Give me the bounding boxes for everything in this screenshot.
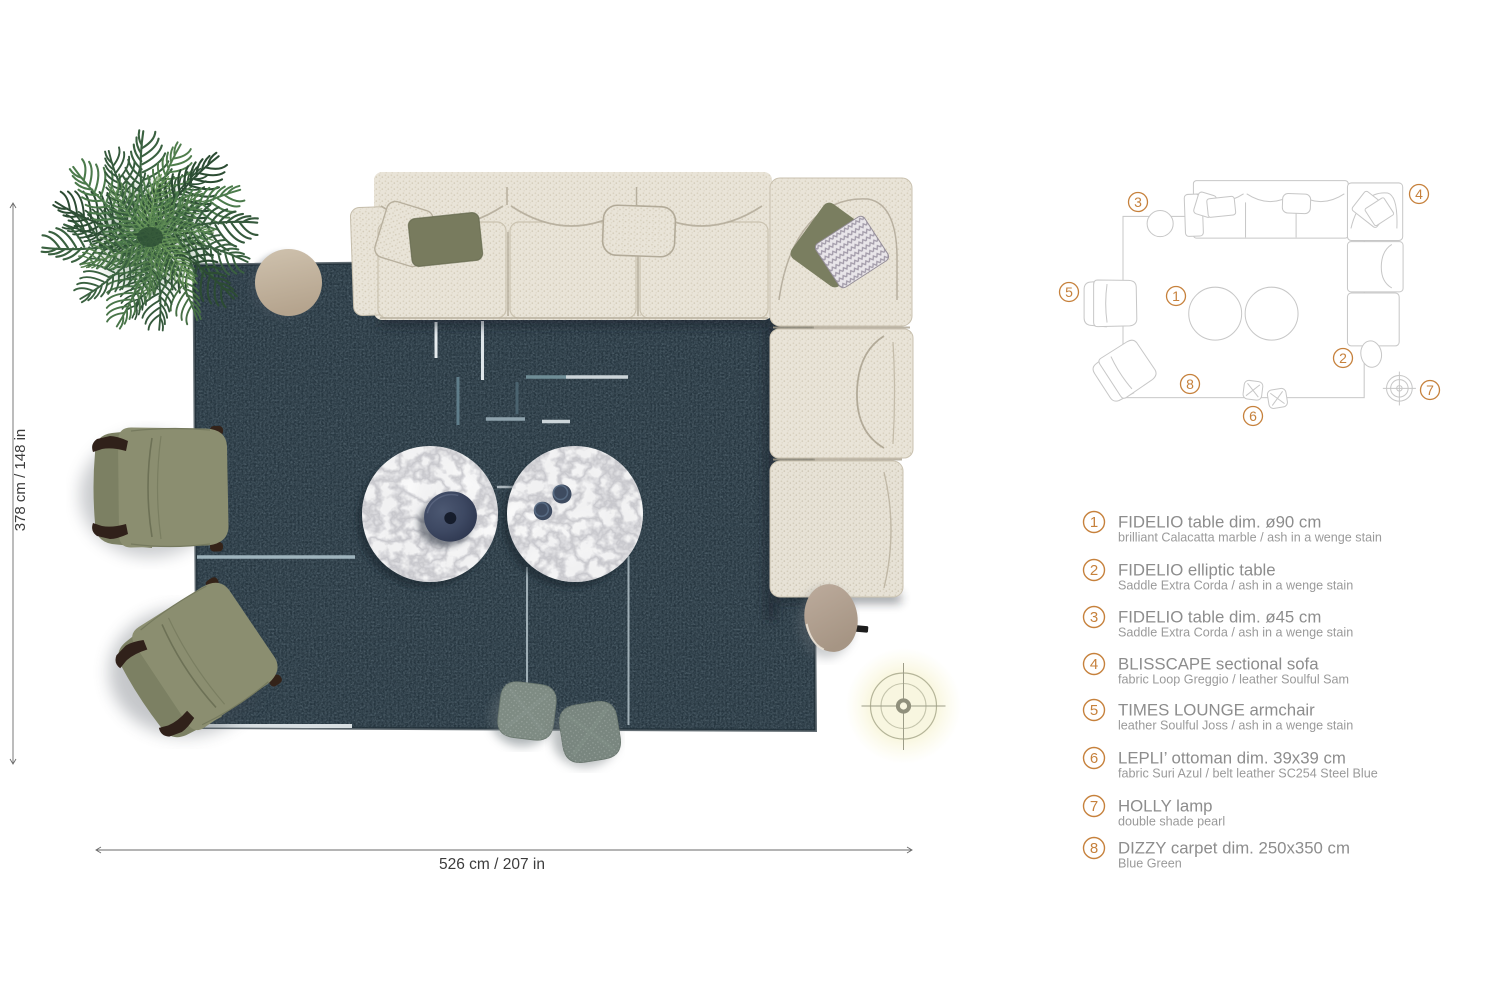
svg-text:leather Soulful Joss / ash in: leather Soulful Joss / ash in a wenge st… — [1118, 719, 1353, 733]
svg-text:7: 7 — [1426, 382, 1434, 398]
svg-text:1: 1 — [1172, 288, 1180, 304]
svg-text:5: 5 — [1065, 284, 1073, 300]
svg-text:6: 6 — [1249, 408, 1257, 424]
svg-text:4: 4 — [1415, 186, 1423, 202]
svg-text:HOLLY lamp: HOLLY lamp — [1118, 797, 1213, 816]
svg-text:4: 4 — [1090, 656, 1098, 673]
svg-text:TIMES LOUNGE armchair: TIMES LOUNGE armchair — [1118, 701, 1315, 720]
svg-text:fabric Loop Greggio / leather: fabric Loop Greggio / leather Soulful Sa… — [1118, 673, 1349, 687]
svg-text:fabric Suri Azul / belt leathe: fabric Suri Azul / belt leather SC254 St… — [1118, 767, 1378, 781]
svg-text:LEPLI’ ottoman dim. 39x39 cm: LEPLI’ ottoman dim. 39x39 cm — [1118, 749, 1346, 768]
svg-text:FIDELIO elliptic table: FIDELIO elliptic table — [1118, 561, 1276, 580]
svg-text:2: 2 — [1090, 562, 1098, 579]
svg-text:3: 3 — [1090, 609, 1098, 626]
svg-text:8: 8 — [1090, 840, 1098, 857]
svg-text:Saddle Extra Corda / ash in a: Saddle Extra Corda / ash in a wenge stai… — [1118, 579, 1353, 593]
svg-text:2: 2 — [1339, 350, 1347, 366]
svg-text:double shade pearl: double shade pearl — [1118, 815, 1225, 829]
svg-text:BLISSCAPE sectional sofa: BLISSCAPE sectional sofa — [1118, 655, 1319, 674]
svg-text:FIDELIO table dim. ø90 cm: FIDELIO table dim. ø90 cm — [1118, 513, 1321, 532]
svg-text:378 cm / 148 in: 378 cm / 148 in — [12, 429, 29, 532]
svg-text:Blue Green: Blue Green — [1118, 857, 1182, 871]
svg-text:7: 7 — [1090, 798, 1098, 815]
svg-text:6: 6 — [1090, 750, 1098, 767]
svg-text:1: 1 — [1090, 514, 1098, 531]
svg-text:8: 8 — [1186, 376, 1194, 392]
svg-text:5: 5 — [1090, 702, 1098, 719]
svg-text:526 cm / 207 in: 526 cm / 207 in — [439, 856, 545, 873]
svg-text:brilliant Calacatta marble / a: brilliant Calacatta marble / ash in a we… — [1118, 531, 1382, 545]
svg-text:Saddle Extra Corda / ash in a: Saddle Extra Corda / ash in a wenge stai… — [1118, 626, 1353, 640]
svg-text:3: 3 — [1134, 194, 1142, 210]
svg-text:FIDELIO table dim. ø45 cm: FIDELIO table dim. ø45 cm — [1118, 608, 1321, 627]
svg-text:DIZZY carpet dim. 250x350 cm: DIZZY carpet dim. 250x350 cm — [1118, 839, 1350, 858]
